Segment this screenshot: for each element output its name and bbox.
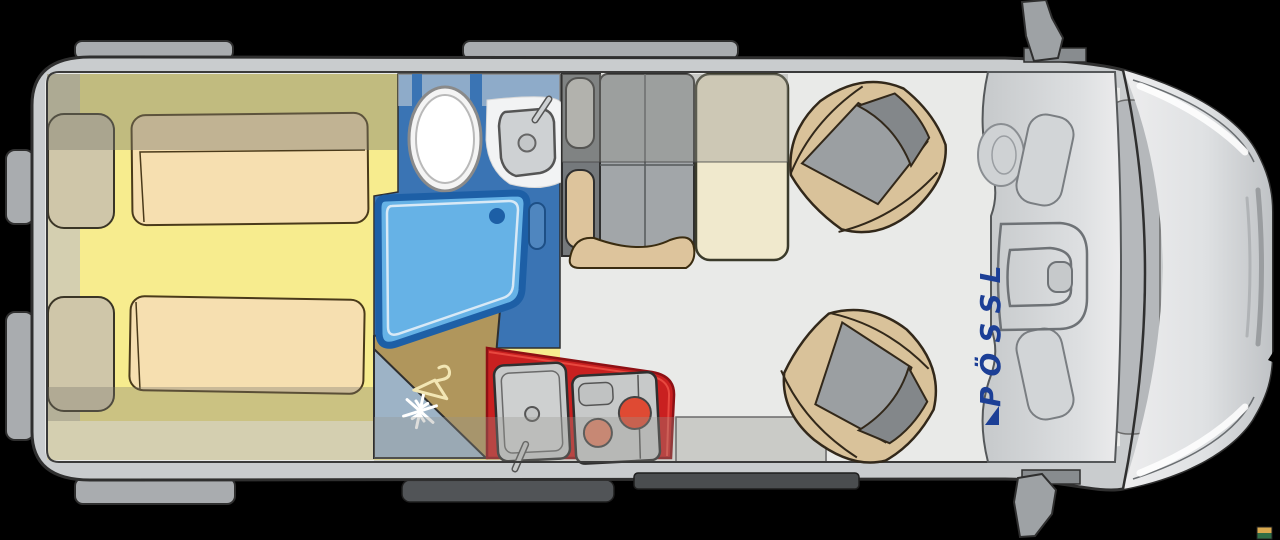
shower-door-handle — [529, 203, 545, 249]
bathroom-floor-slit — [470, 74, 482, 106]
bench-headrest-lower — [566, 170, 594, 248]
rear-door-handle-upper — [6, 150, 34, 224]
bottom-rail-left — [75, 478, 235, 504]
shower-drain — [489, 208, 505, 224]
dinette — [562, 74, 788, 268]
bottom-rail-right — [402, 480, 614, 502]
entry-step — [634, 473, 859, 489]
stove-control — [578, 382, 613, 406]
brand-logo: PÖSSL — [973, 256, 1007, 426]
toilet-lid — [416, 95, 474, 183]
campervan-floorplan-image: PÖSSL — [0, 0, 1280, 540]
washbasin-drain — [519, 135, 536, 152]
watermark-bottom-stripe — [1257, 533, 1272, 539]
bed-lower-cabinet-band — [47, 421, 374, 460]
mattress-lower — [129, 296, 365, 394]
overhead-locker-shade-bottom — [47, 387, 374, 421]
rear-door-handle-lower — [6, 312, 34, 440]
overhead-locker-shade-dinette — [562, 74, 788, 162]
watermark-top-stripe — [1257, 527, 1272, 533]
brand-logo-text: PÖSSL — [973, 256, 1007, 408]
watermark-icon — [1257, 527, 1272, 539]
steering-wheel-hub — [1048, 262, 1072, 292]
overhead-locker-shade-top — [47, 74, 398, 150]
floorplan-svg: PÖSSL — [0, 0, 1280, 540]
